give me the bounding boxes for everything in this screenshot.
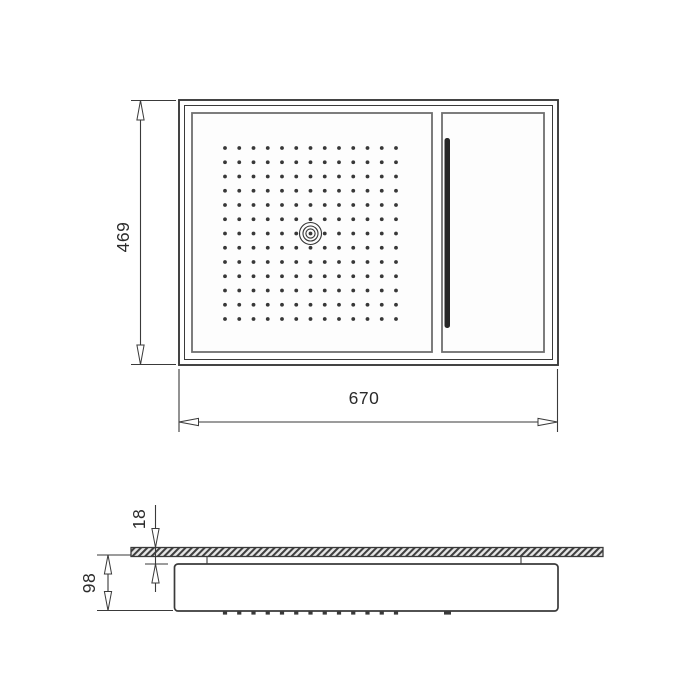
spray-nozzle-dot xyxy=(323,232,327,236)
arrowhead-up-icon xyxy=(104,555,111,574)
spray-nozzle-dot xyxy=(394,246,398,250)
spray-nozzle-dot xyxy=(223,260,227,264)
technical-drawing: 469 670 18 98 xyxy=(0,0,700,700)
spray-nozzle-dot xyxy=(223,146,227,150)
spray-nozzle-dot xyxy=(366,217,370,221)
spray-nozzle-dot xyxy=(223,203,227,207)
emblem-center-dot xyxy=(309,232,313,236)
spray-nozzle-dot xyxy=(223,274,227,278)
spray-nozzle-dot xyxy=(351,260,355,264)
spray-nozzle-dot xyxy=(351,274,355,278)
spray-nozzle-dot xyxy=(323,274,327,278)
spray-nozzle-dot xyxy=(309,289,313,293)
spray-nozzle-dot xyxy=(252,146,256,150)
spray-nozzle-dot xyxy=(280,203,284,207)
spray-nozzle-dot xyxy=(223,303,227,307)
spray-nozzle-dot xyxy=(252,246,256,250)
spray-nozzle-dot xyxy=(323,289,327,293)
spray-nozzle-dot xyxy=(237,232,241,236)
spray-nozzle-dot xyxy=(337,274,341,278)
spray-nozzle-dot xyxy=(394,317,398,321)
spray-nozzle-dot xyxy=(237,203,241,207)
spray-nozzle-dot xyxy=(337,160,341,164)
spray-nozzle-dot xyxy=(266,317,270,321)
spray-nozzle-dot xyxy=(294,246,298,250)
spray-nozzle-dot xyxy=(294,175,298,179)
spray-nozzle-dot xyxy=(394,203,398,207)
spray-nozzle-dot xyxy=(366,160,370,164)
spray-nozzle-dot xyxy=(351,317,355,321)
spray-nozzle-dot xyxy=(223,232,227,236)
spray-nozzle-dot xyxy=(266,274,270,278)
spray-nozzle-dot xyxy=(252,232,256,236)
spray-nozzle-dot xyxy=(394,289,398,293)
spray-nozzle-dot xyxy=(309,246,313,250)
spray-nozzle-dot xyxy=(351,232,355,236)
nozzle-tick xyxy=(237,611,241,615)
spray-nozzle-dot xyxy=(280,160,284,164)
spray-nozzle-dot xyxy=(237,274,241,278)
spray-nozzle-dot xyxy=(366,246,370,250)
spray-nozzle-dot xyxy=(394,232,398,236)
nozzle-tick xyxy=(223,611,227,615)
spray-nozzle-dot xyxy=(294,260,298,264)
ceiling-plate-section xyxy=(131,548,603,557)
spray-nozzle-dot xyxy=(394,146,398,150)
nozzle-tick xyxy=(266,611,270,615)
spray-nozzle-dot xyxy=(394,274,398,278)
nozzle-tick xyxy=(380,611,384,615)
spray-nozzle-dot xyxy=(309,189,313,193)
spray-nozzle-dot xyxy=(309,217,313,221)
spray-nozzle-dot xyxy=(366,289,370,293)
arrowhead-up-icon xyxy=(152,564,159,583)
spray-nozzle-dot xyxy=(237,217,241,221)
spray-nozzle-dot xyxy=(323,160,327,164)
spray-nozzle-dot xyxy=(351,189,355,193)
spray-nozzle-dot xyxy=(266,260,270,264)
spray-nozzle-dot xyxy=(323,317,327,321)
spray-nozzle-dot xyxy=(380,160,384,164)
center-nozzle-emblem xyxy=(300,223,322,245)
spray-nozzle-dot xyxy=(351,175,355,179)
spray-nozzle-dot xyxy=(280,146,284,150)
spray-nozzle-dot xyxy=(337,203,341,207)
spray-nozzle-dot xyxy=(237,160,241,164)
spray-nozzle-dot xyxy=(223,317,227,321)
spray-nozzle-dot xyxy=(380,217,384,221)
spray-nozzle-dot xyxy=(337,175,341,179)
spray-nozzle-dot xyxy=(223,289,227,293)
spray-nozzle-dot xyxy=(223,217,227,221)
spray-nozzle-dot xyxy=(294,203,298,207)
spray-nozzle-dot xyxy=(280,246,284,250)
body-height-label: 98 xyxy=(79,573,99,593)
waterfall-slot-tick xyxy=(444,611,451,615)
nozzle-tick xyxy=(394,611,398,615)
spray-nozzle-dot xyxy=(380,146,384,150)
spray-nozzle-dot xyxy=(280,189,284,193)
spray-nozzle-dot xyxy=(266,246,270,250)
spray-nozzle-dot xyxy=(351,246,355,250)
spray-nozzle-dot xyxy=(351,203,355,207)
spray-nozzle-dot xyxy=(366,260,370,264)
spray-nozzle-dot xyxy=(223,175,227,179)
spray-nozzle-dot xyxy=(266,203,270,207)
width-dimension-label: 670 xyxy=(349,388,380,408)
spray-nozzle-dot xyxy=(337,260,341,264)
spray-nozzle-dot xyxy=(237,246,241,250)
spray-nozzle-dot xyxy=(366,175,370,179)
arrowhead-up-icon xyxy=(137,101,144,121)
spray-nozzle-dot xyxy=(394,217,398,221)
spray-nozzle-dot xyxy=(252,203,256,207)
spray-nozzle-dot xyxy=(294,289,298,293)
spray-nozzle-dot xyxy=(237,146,241,150)
spray-nozzle-dot xyxy=(366,317,370,321)
spray-nozzle-dot xyxy=(394,303,398,307)
spray-nozzle-dot xyxy=(380,303,384,307)
spray-nozzle-dot xyxy=(309,303,313,307)
spray-nozzle-dot xyxy=(294,160,298,164)
spray-nozzle-dot xyxy=(294,217,298,221)
spray-nozzle-dot xyxy=(309,175,313,179)
spray-nozzle-dot xyxy=(266,189,270,193)
spray-nozzle-dot xyxy=(394,189,398,193)
spray-nozzle-dot xyxy=(237,303,241,307)
spray-nozzle-dot xyxy=(266,303,270,307)
spray-nozzle-dot xyxy=(280,274,284,278)
spray-nozzle-dot xyxy=(280,303,284,307)
top-view xyxy=(179,100,558,365)
spray-nozzle-dot xyxy=(366,232,370,236)
waterfall-slot xyxy=(445,138,451,328)
spray-nozzle-dot xyxy=(252,160,256,164)
spray-nozzle-dot xyxy=(294,146,298,150)
spray-nozzle-dot xyxy=(252,260,256,264)
spray-nozzle-dot xyxy=(237,260,241,264)
spray-nozzle-dot xyxy=(366,303,370,307)
depth-dimension-label: 469 xyxy=(113,222,133,253)
spray-nozzle-dot xyxy=(323,260,327,264)
spray-nozzle-dot xyxy=(380,317,384,321)
spray-nozzle-dot xyxy=(252,217,256,221)
spray-nozzle-dot xyxy=(252,289,256,293)
spray-nozzle-dot xyxy=(323,246,327,250)
arrowhead-left-icon xyxy=(179,418,199,425)
nozzle-tick xyxy=(280,611,284,615)
nozzle-tick xyxy=(323,611,327,615)
spray-nozzle-dot xyxy=(266,217,270,221)
spray-nozzle-dot xyxy=(252,189,256,193)
spray-nozzle-dot xyxy=(323,303,327,307)
spray-nozzle-dot xyxy=(394,260,398,264)
spray-nozzle-dot xyxy=(323,175,327,179)
spray-nozzle-dot xyxy=(366,274,370,278)
spray-nozzle-dot xyxy=(337,189,341,193)
spray-nozzle-dot xyxy=(280,260,284,264)
spray-nozzle-dot xyxy=(394,175,398,179)
spray-nozzle-dot xyxy=(380,246,384,250)
waterfall-panel xyxy=(442,113,544,352)
body-profile xyxy=(175,564,559,611)
spray-nozzle-dot xyxy=(280,317,284,321)
arrowhead-down-icon xyxy=(104,592,111,611)
nozzle-tick xyxy=(337,611,341,615)
spray-nozzle-dot xyxy=(337,317,341,321)
spray-nozzle-dot xyxy=(337,246,341,250)
spray-nozzle-dot xyxy=(223,160,227,164)
spray-nozzle-dot xyxy=(366,189,370,193)
spray-nozzle-dot xyxy=(309,260,313,264)
spray-nozzle-dot xyxy=(323,203,327,207)
spray-nozzle-dot xyxy=(294,274,298,278)
dimension-overall-width: 670 xyxy=(179,369,558,432)
spray-nozzle-dot xyxy=(337,289,341,293)
spray-nozzle-dot xyxy=(380,289,384,293)
spray-nozzle-dot xyxy=(237,317,241,321)
spray-nozzle-dot xyxy=(280,175,284,179)
spray-nozzle-dot xyxy=(237,175,241,179)
arrowhead-down-icon xyxy=(152,529,159,548)
spray-nozzle-dot xyxy=(337,303,341,307)
spray-nozzle-dot xyxy=(337,217,341,221)
spray-nozzle-dot xyxy=(380,189,384,193)
spray-nozzle-dot xyxy=(351,303,355,307)
spray-nozzle-dot xyxy=(252,317,256,321)
spray-nozzle-dot xyxy=(237,289,241,293)
spray-nozzle-dot xyxy=(280,217,284,221)
spray-nozzle-dot xyxy=(351,217,355,221)
nozzle-tick xyxy=(308,611,312,615)
nozzle-tick xyxy=(251,611,255,615)
spray-nozzle-dot xyxy=(266,146,270,150)
spray-nozzle-dot xyxy=(294,232,298,236)
spray-nozzle-dot xyxy=(380,232,384,236)
arrowhead-down-icon xyxy=(137,345,144,365)
spray-nozzle-dot xyxy=(266,232,270,236)
spray-nozzle-dot xyxy=(294,303,298,307)
side-view xyxy=(131,548,603,615)
spray-nozzle-dot xyxy=(309,274,313,278)
spray-nozzle-dot xyxy=(309,146,313,150)
nozzle-tick xyxy=(351,611,355,615)
spray-nozzle-dot xyxy=(351,160,355,164)
spray-nozzle-dot xyxy=(252,175,256,179)
spray-nozzle-dot xyxy=(394,160,398,164)
spray-nozzle-dot xyxy=(252,303,256,307)
spray-nozzle-dot xyxy=(266,160,270,164)
arrowhead-right-icon xyxy=(538,418,558,425)
spray-nozzle-dot xyxy=(266,289,270,293)
spray-nozzle-dot xyxy=(294,317,298,321)
spray-nozzle-dot xyxy=(323,146,327,150)
dimension-overall-depth: 469 xyxy=(113,101,176,365)
spray-nozzle-dot xyxy=(266,175,270,179)
spray-nozzle-dot xyxy=(309,317,313,321)
spray-nozzle-dot xyxy=(337,232,341,236)
spray-nozzle-dot xyxy=(252,274,256,278)
spray-nozzle-dot xyxy=(309,203,313,207)
spray-nozzle-dot xyxy=(380,260,384,264)
nozzle-tick xyxy=(365,611,369,615)
spray-nozzle-dot xyxy=(366,203,370,207)
spray-nozzle-dot xyxy=(380,203,384,207)
spray-nozzle-dot xyxy=(280,289,284,293)
spray-nozzle-dot xyxy=(223,189,227,193)
spray-nozzle-dot xyxy=(223,246,227,250)
spray-nozzle-dot xyxy=(351,289,355,293)
spray-nozzle-dot xyxy=(351,146,355,150)
spray-nozzle-dot xyxy=(280,232,284,236)
plate-thickness-label: 18 xyxy=(129,509,149,529)
spray-nozzle-dot xyxy=(294,189,298,193)
spray-nozzle-dot xyxy=(323,189,327,193)
spray-nozzle-dot xyxy=(237,189,241,193)
spray-nozzle-dot xyxy=(380,274,384,278)
spray-nozzle-dot xyxy=(309,160,313,164)
spray-nozzle-dot xyxy=(380,175,384,179)
nozzle-tick xyxy=(294,611,298,615)
spray-nozzle-dot xyxy=(366,146,370,150)
spray-nozzle-dot xyxy=(337,146,341,150)
spray-nozzle-dot xyxy=(323,217,327,221)
